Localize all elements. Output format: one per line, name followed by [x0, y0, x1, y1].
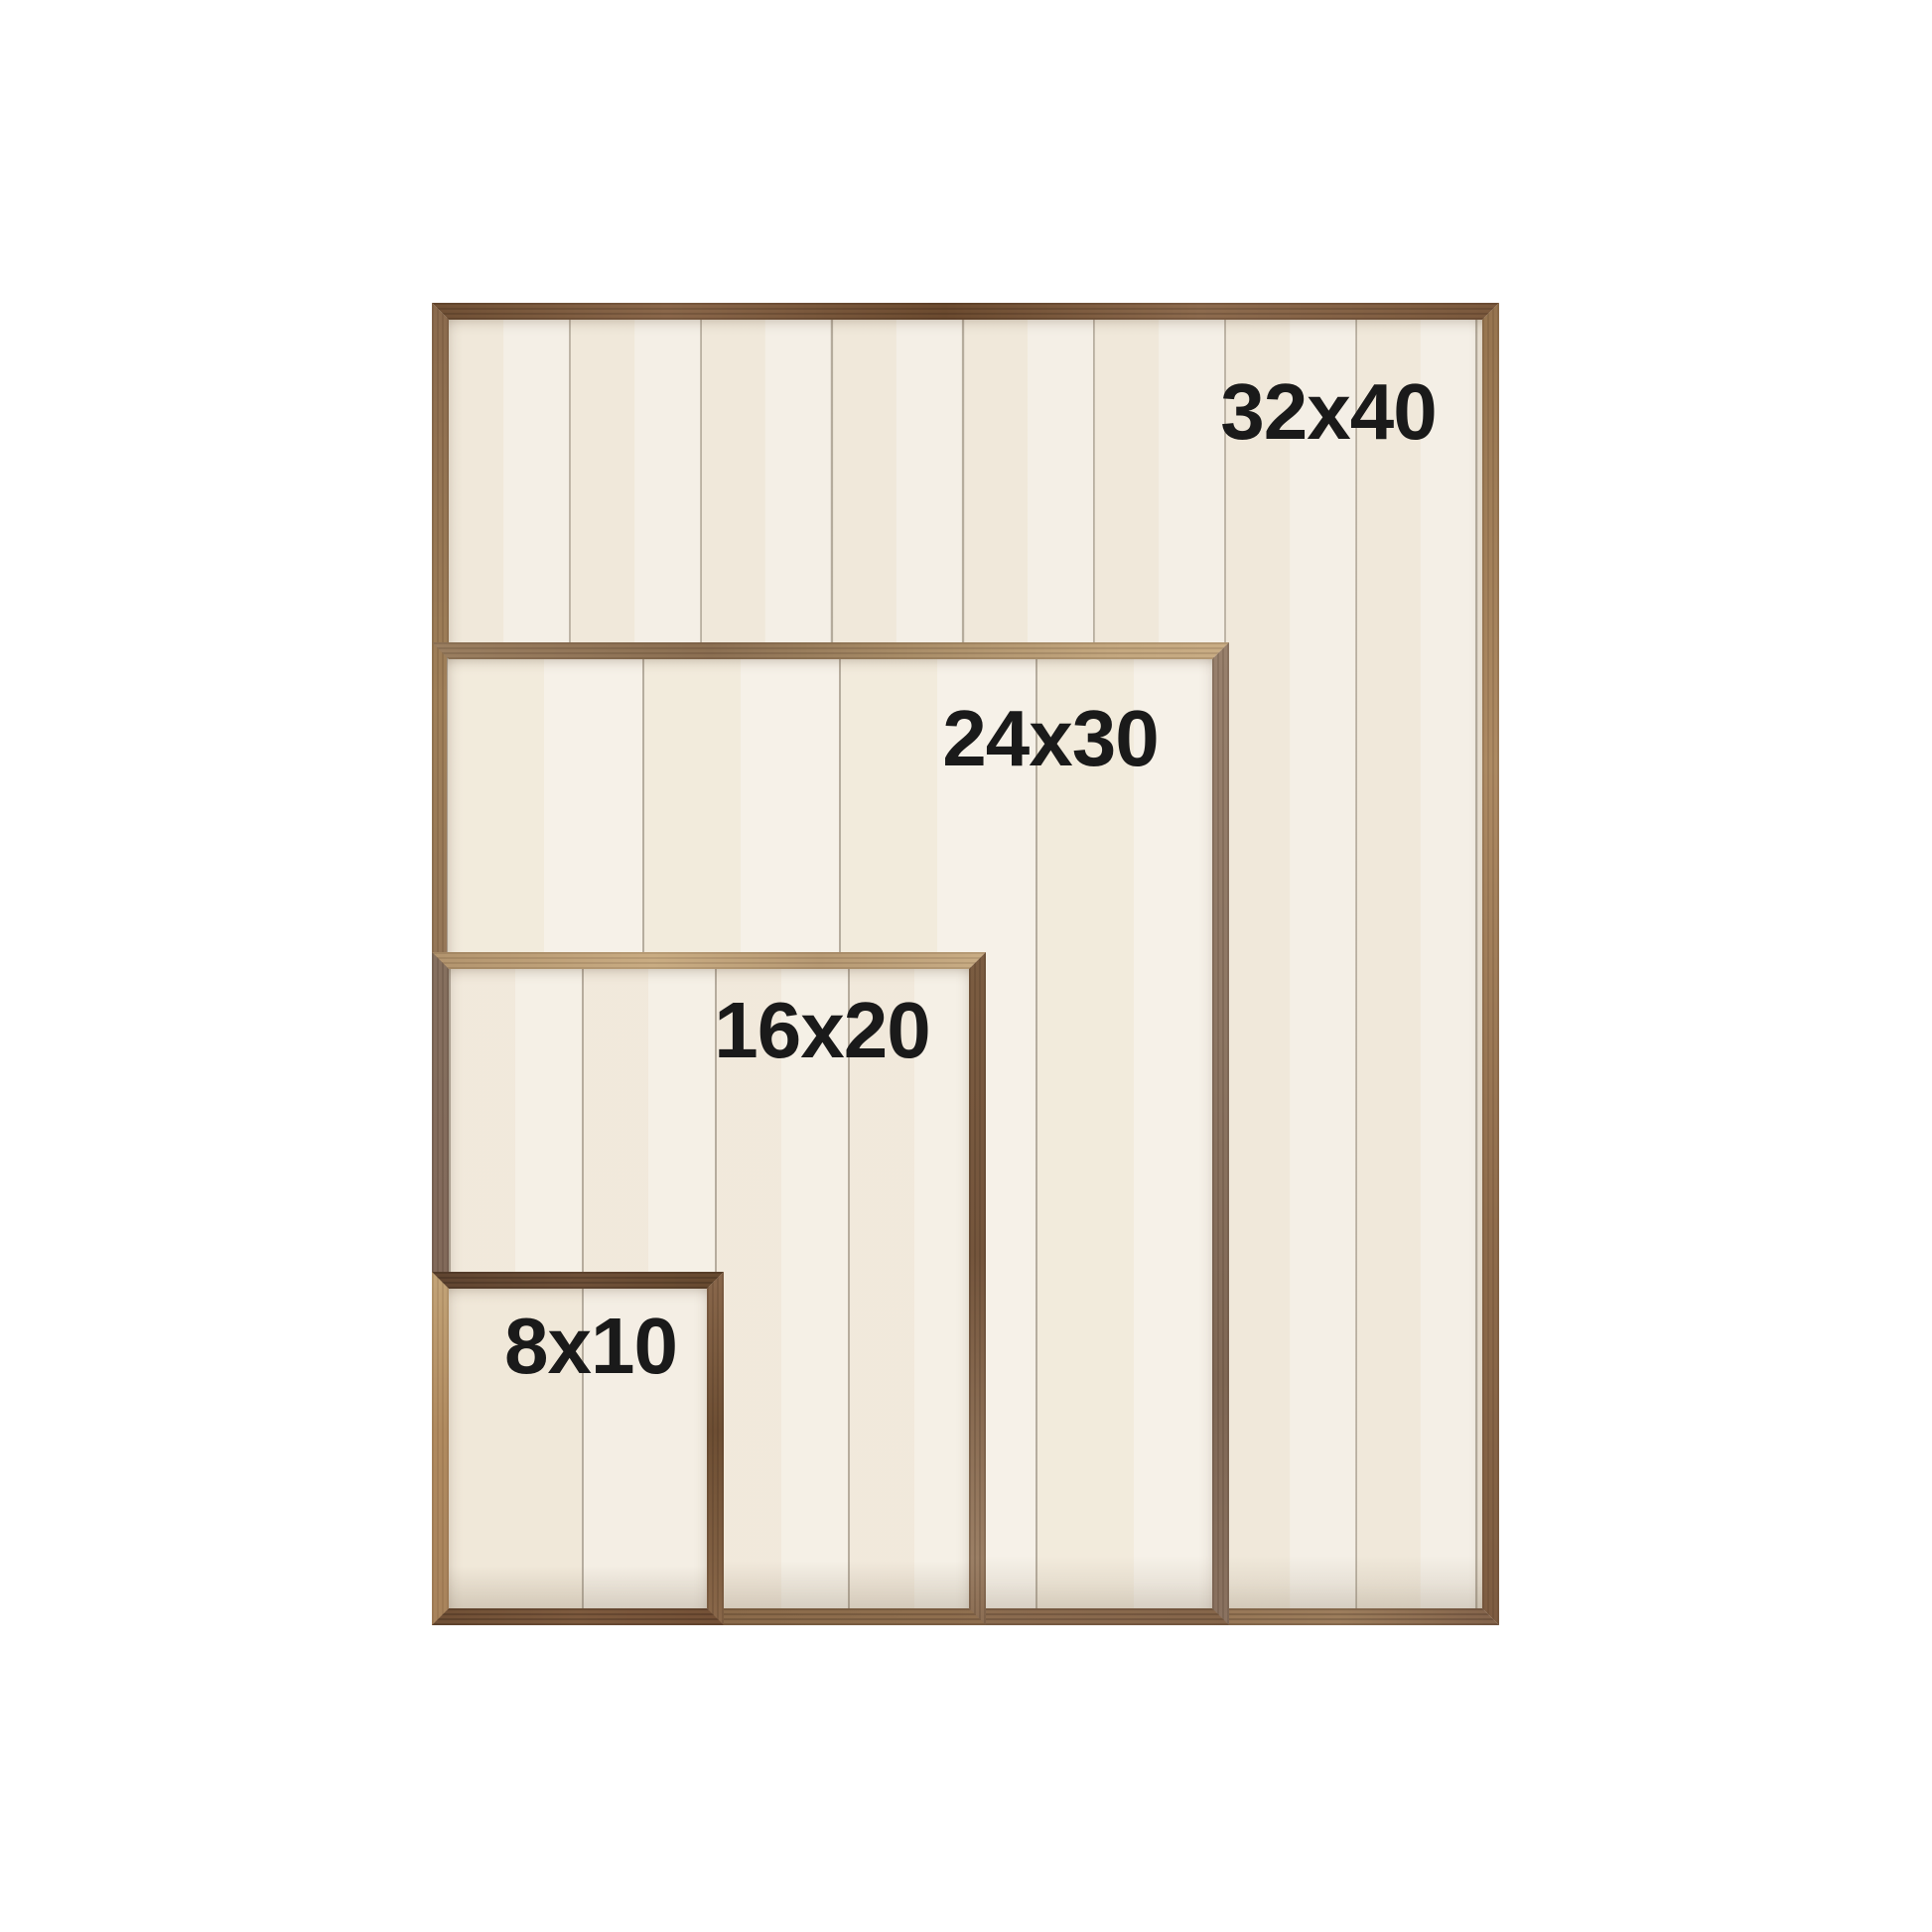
wood-rail-right — [707, 1272, 724, 1625]
wood-rail-right — [969, 952, 986, 1625]
size-label-32x40: 32x40 — [1220, 366, 1436, 458]
size-label-8x10: 8x10 — [504, 1301, 677, 1392]
size-label-16x20: 16x20 — [714, 985, 929, 1076]
wood-rail-top — [432, 303, 1499, 320]
wood-rail-left — [432, 1272, 449, 1625]
wood-rail-top — [432, 1272, 724, 1289]
wood-rail-top — [432, 952, 986, 969]
wood-rail-right — [1482, 303, 1499, 1625]
frame-8x10: 8x10 — [432, 1272, 724, 1625]
wood-rail-top — [432, 642, 1229, 659]
size-label-24x30: 24x30 — [942, 693, 1158, 784]
size-chart-canvas: 32x40 24x30 16x20 8x10 — [0, 0, 1932, 1932]
wood-rail-right — [1212, 642, 1229, 1625]
wood-rail-bottom — [432, 1608, 724, 1625]
